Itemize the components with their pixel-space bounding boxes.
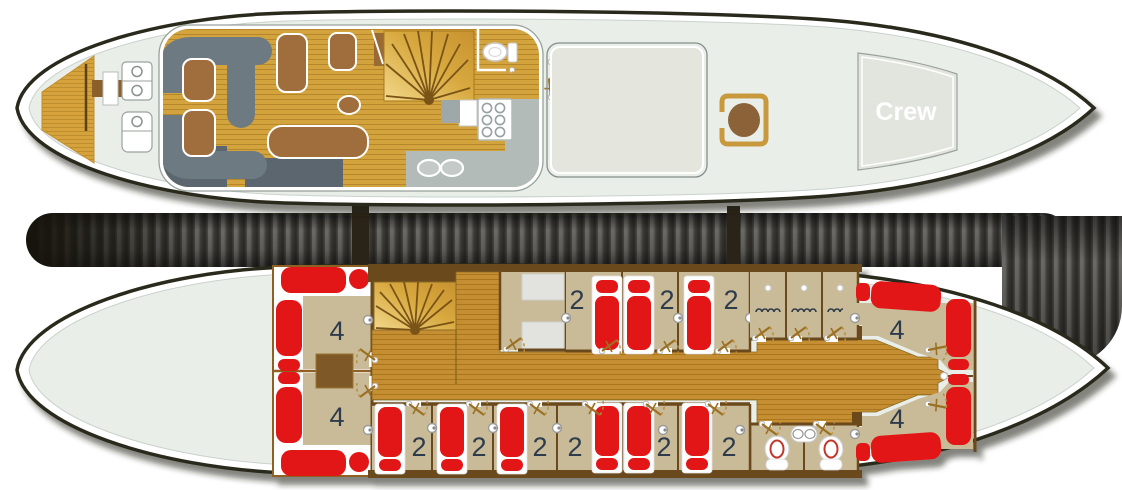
seat-cushion: [728, 103, 760, 137]
bed: [684, 276, 714, 354]
bed: [375, 404, 405, 474]
seat: [277, 34, 307, 92]
cabin-capacity-label: 2: [567, 432, 582, 462]
wall-lamp-icon: [364, 316, 373, 325]
cabin-capacity-label: 2: [721, 432, 736, 462]
staircase-icon: [374, 282, 456, 335]
deck-plan-svg: 4 4: [0, 0, 1122, 490]
toilet-icon: [489, 48, 501, 57]
wall-lamp-icon: [736, 426, 745, 435]
pillow: [856, 443, 870, 461]
lower-deck-plan: 4 4: [17, 264, 1108, 478]
cabin-capacity-label: 4: [889, 404, 904, 434]
cabin-capacity-label: 4: [329, 402, 344, 432]
door-opening: [941, 373, 948, 380]
wall-lamp-icon: [851, 430, 860, 439]
skylight: [547, 43, 707, 177]
salon-block: [159, 25, 543, 191]
wall-lamp-icon: [553, 424, 562, 433]
cabin-capacity-label: 4: [889, 315, 904, 345]
cabin-capacity-label: 2: [659, 285, 674, 315]
bed: [946, 299, 971, 357]
bed: [437, 404, 467, 474]
pillow: [278, 372, 300, 384]
pillow: [349, 452, 369, 472]
upper-row-double-cabins: 2 2 2: [562, 272, 755, 354]
bed: [870, 432, 942, 464]
bunk-panel: [522, 274, 564, 300]
wall-lamp-icon: [851, 314, 860, 323]
upper-deck-plan: Crew: [17, 11, 1094, 205]
pillow: [948, 359, 969, 370]
bed: [281, 450, 346, 476]
bed: [276, 387, 302, 443]
wc-rooms: [750, 421, 858, 470]
pillow: [856, 283, 870, 301]
crew-label: Crew: [875, 98, 937, 126]
toilet-tank: [508, 43, 517, 62]
bed: [624, 276, 654, 354]
lower-row-double-cabins: 2 2 2 2 2 2: [372, 401, 750, 474]
wall-lamp-icon: [364, 426, 373, 435]
aft-quad-cabins: 4 4: [273, 266, 375, 476]
bed: [946, 387, 971, 445]
gangway-step: [103, 72, 118, 105]
cabin-capacity-label: 2: [656, 432, 671, 462]
sink-icon: [441, 160, 463, 176]
bed: [870, 281, 942, 313]
stove-icon: [478, 99, 512, 140]
cabin-capacity-label: 2: [723, 285, 738, 315]
stool: [338, 96, 360, 114]
cabinet: [441, 100, 460, 123]
toilet-icon: [819, 436, 843, 470]
cabin-capacity-label: 2: [569, 285, 584, 315]
utility-room: [500, 272, 566, 352]
cabin-capacity-label: 2: [471, 432, 486, 462]
outer-wall: [368, 264, 456, 282]
table: [183, 59, 215, 101]
staircase-icon: [372, 30, 474, 105]
cabin-capacity-label: 2: [532, 432, 547, 462]
bed: [497, 404, 527, 474]
bunk-panel: [522, 322, 564, 350]
table: [183, 110, 215, 156]
nightstand-table: [316, 354, 353, 388]
deck-plans-figure: 4 4: [0, 0, 1122, 490]
light-icon: [837, 285, 843, 291]
pillow: [278, 359, 300, 371]
bed: [682, 403, 712, 473]
light-icon: [801, 285, 807, 291]
bench: [268, 126, 368, 158]
wall-lamp-icon: [428, 424, 437, 433]
wall-lamp-icon: [489, 424, 498, 433]
sink-icon: [791, 426, 817, 442]
wall-lamp-icon: [674, 314, 683, 323]
toilet-icon: [765, 436, 789, 470]
light-icon: [765, 285, 771, 291]
cabin-capacity-label: 4: [329, 316, 344, 346]
pillow: [349, 269, 369, 289]
crew-quarters: Crew: [858, 53, 957, 170]
bed: [281, 267, 346, 293]
cabin-capacity-label: 2: [411, 432, 426, 462]
pillow: [948, 374, 969, 385]
sink-icon: [418, 160, 440, 176]
seat: [329, 33, 356, 70]
cabinet: [459, 100, 477, 126]
shower-rooms: [750, 272, 858, 342]
bed: [276, 300, 302, 356]
